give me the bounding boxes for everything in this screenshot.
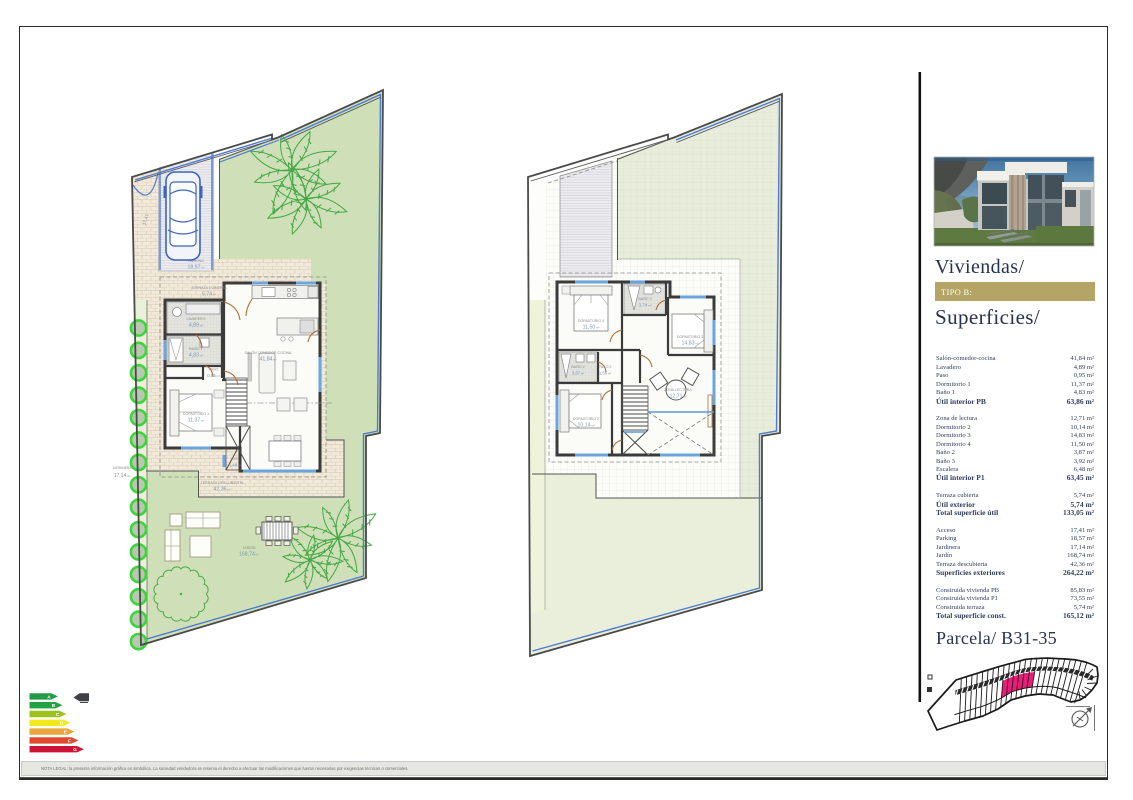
svg-text:ZONA LECTURA: ZONA LECTURA [664,388,692,392]
svg-text:DORMITORIO 3: DORMITORIO 3 [677,335,703,339]
svg-text:BAÑO 3: BAÑO 3 [638,296,651,301]
svg-text:1,58 m²: 1,58 m² [599,371,611,376]
svg-text:3,74 m²: 3,74 m² [639,303,652,308]
svg-text:BAÑO 1: BAÑO 1 [189,346,202,351]
svg-text:3,87 m²: 3,87 m² [572,371,584,376]
svg-text:PASO 2: PASO 2 [599,365,612,369]
svg-text:SALÓN COMEDOR COCINA: SALÓN COMEDOR COCINA [245,350,293,355]
svg-text:DORMITORIO 4: DORMITORIO 4 [578,319,604,323]
svg-text:17,14 m²: 17,14 m² [114,473,131,479]
svg-text:ESC.: ESC. [231,457,239,461]
svg-text:TERRAZA DESCUBIERTA: TERRAZA DESCUBIERTA [201,481,244,485]
svg-text:PASO: PASO [209,368,219,372]
svg-text:D: D [60,721,64,727]
svg-text:JARDINERA: JARDINERA [112,466,132,470]
svg-text:JARDÍN: JARDÍN [243,546,256,550]
svg-text:LAVADERO: LAVADERO [186,317,205,321]
svg-text:6,48 m²: 6,48 m² [229,463,241,468]
svg-text:TERRAZA CUBIERTA: TERRAZA CUBIERTA [191,286,227,290]
svg-text:BAÑO 2: BAÑO 2 [571,364,584,369]
svg-text:G: G [73,747,77,753]
svg-text:A: A [47,694,51,700]
svg-text:B: B [52,703,56,709]
svg-text:F: F [68,738,71,744]
svg-text:DORMITORIO 1: DORMITORIO 1 [183,412,209,416]
svg-text:DORMITORIO 2: DORMITORIO 2 [573,417,599,421]
svg-text:C: C [56,712,60,718]
svg-text:0,95 m²: 0,95 m² [207,373,220,378]
